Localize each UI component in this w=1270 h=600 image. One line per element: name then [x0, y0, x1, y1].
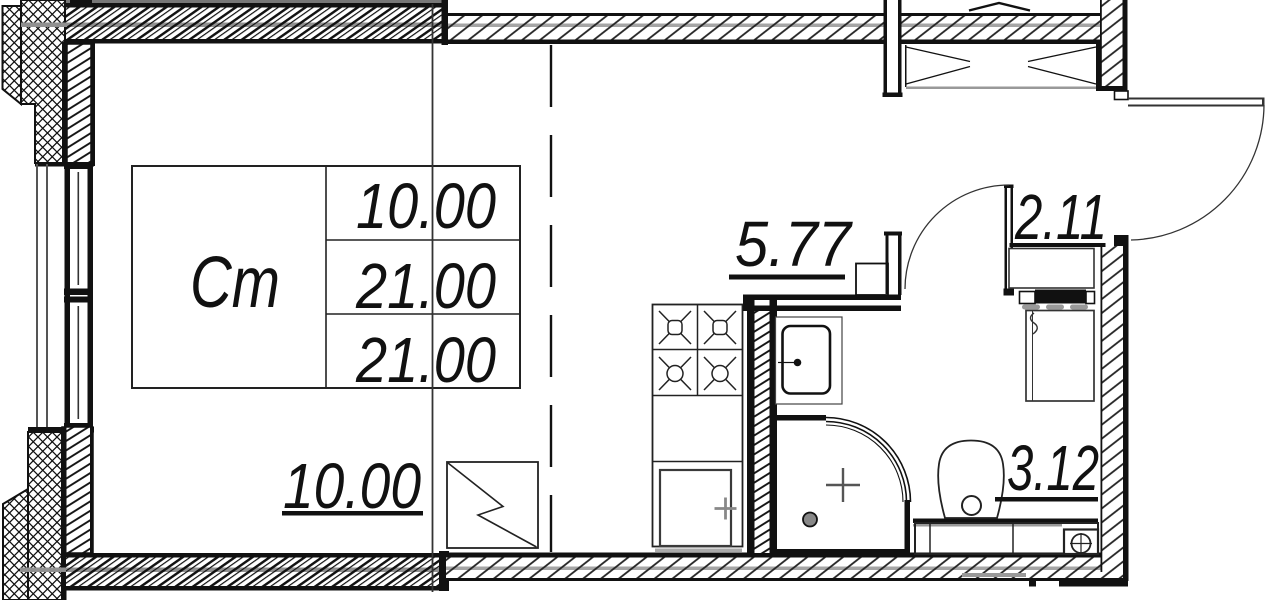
svg-text:Ст: Ст: [190, 243, 280, 323]
svg-text:2.11: 2.11: [1014, 181, 1107, 253]
svg-text:10.00: 10.00: [356, 170, 496, 242]
svg-text:21.00: 21.00: [355, 324, 496, 396]
svg-text:3.12: 3.12: [1007, 432, 1099, 504]
svg-text:5.77: 5.77: [735, 208, 853, 280]
svg-text:21.00: 21.00: [355, 250, 496, 322]
